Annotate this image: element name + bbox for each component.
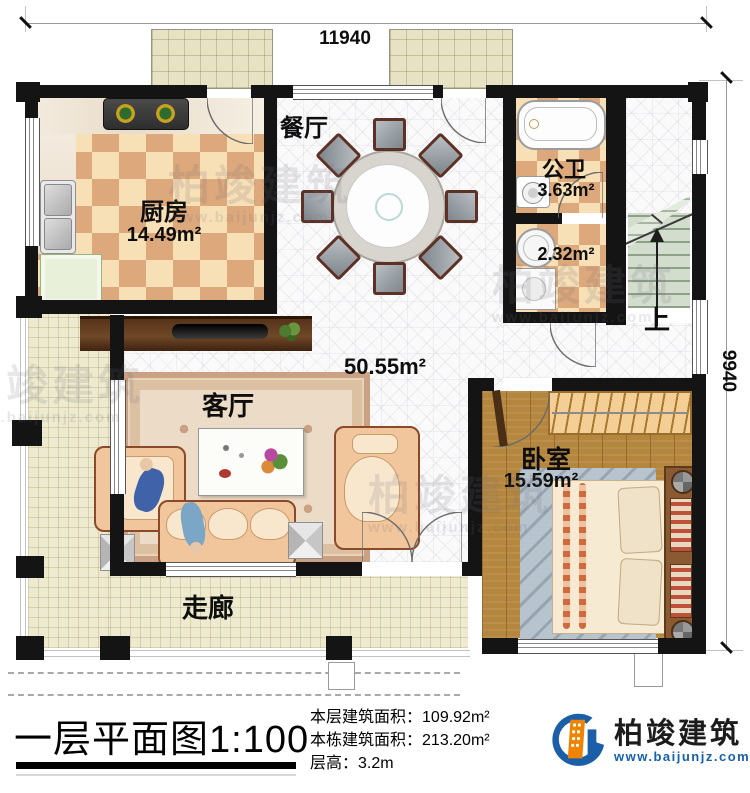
wall — [468, 378, 482, 576]
title-underline-thin — [16, 774, 296, 776]
stat-line: 本栋建筑面积：213.20m² — [310, 729, 490, 752]
veranda-edge — [20, 314, 21, 648]
room-area-kitchen: 14.49m² — [105, 224, 223, 247]
wall — [277, 85, 293, 98]
washer-drum — [522, 277, 546, 301]
table-center — [375, 193, 403, 221]
extension-line — [699, 80, 743, 81]
sofa-cushion — [208, 508, 248, 540]
double-door-arc — [362, 512, 412, 562]
double-door-arc — [412, 512, 462, 562]
wall — [692, 98, 706, 140]
entry-step — [328, 662, 355, 690]
building-stats: 本层建筑面积：109.92m² 本栋建筑面积：213.20m² 层高：3.2m — [310, 706, 490, 775]
top-dimension-label: 11940 — [300, 28, 390, 50]
wall — [516, 213, 562, 224]
column — [688, 82, 708, 102]
burner-icon — [156, 104, 175, 123]
window — [293, 85, 433, 100]
column — [16, 82, 40, 102]
room-area-bath: 3.63m² — [524, 180, 608, 201]
room-label-dining: 餐厅 — [280, 108, 328, 143]
stat-line: 层高：3.2m — [310, 752, 490, 775]
bed — [552, 480, 666, 634]
pillow — [617, 486, 662, 554]
sofa-cushion — [250, 508, 290, 540]
coffee-table — [198, 428, 304, 496]
fridge-icon — [40, 254, 102, 304]
room-label-living: 客厅 — [178, 386, 278, 423]
wall — [482, 378, 494, 391]
chair-icon — [373, 118, 406, 151]
door-arc — [441, 98, 486, 143]
dot-decor — [223, 445, 229, 451]
veranda-edge — [20, 650, 470, 651]
extension-line — [706, 6, 707, 32]
title-bar: 一层平面图1:100 本层建筑面积：109.92m² 本栋建筑面积：213.20… — [0, 700, 750, 793]
veranda-edge — [25, 314, 26, 648]
roof-overhang-dashed-line — [8, 694, 460, 696]
dish-decor — [219, 469, 231, 478]
arrow-head-icon — [650, 228, 664, 242]
side-table-icon — [288, 522, 323, 559]
wall — [486, 85, 706, 98]
wall — [606, 98, 626, 325]
wall — [25, 300, 277, 314]
stat-line: 本层建筑面积：109.92m² — [310, 706, 490, 729]
stove-icon — [103, 98, 189, 130]
stairs-up-label: 上 — [640, 300, 674, 337]
window — [25, 118, 40, 246]
room-area-bedroom: 15.59m² — [486, 470, 596, 493]
title-underline — [16, 762, 296, 769]
extension-line — [25, 6, 26, 32]
roof-overhang-dashed-line — [8, 672, 460, 674]
flower-decor — [259, 443, 289, 477]
three-seat-sofa — [158, 500, 296, 568]
blanket-stripe — [563, 483, 570, 629]
wall — [692, 174, 706, 300]
tub-drain — [529, 119, 539, 129]
wall — [462, 562, 482, 576]
wall — [658, 638, 706, 654]
window — [692, 300, 708, 374]
dot-decor — [239, 453, 244, 458]
wall — [110, 494, 124, 564]
room-area-hall: 50.55m² — [330, 354, 440, 380]
plant-icon — [278, 321, 302, 341]
pillow — [617, 558, 662, 626]
blanket-stripe — [579, 483, 586, 629]
wardrobe-rail — [552, 412, 688, 414]
logo-url: www.baijunjz.com — [614, 749, 750, 764]
wall — [110, 315, 124, 380]
room-area-utility: 2.32m² — [524, 244, 608, 265]
plan-title: 一层平面图1:100 — [14, 708, 309, 763]
burner-icon — [116, 104, 135, 123]
right-dimension-label: 9940 — [717, 341, 739, 401]
wall — [264, 98, 277, 300]
window — [110, 380, 126, 494]
window — [692, 140, 708, 174]
entry-step — [634, 652, 663, 687]
terrace-floor — [152, 30, 272, 88]
chaise-pillow — [352, 434, 398, 454]
washing-machine-icon — [512, 268, 556, 310]
column — [100, 636, 130, 660]
column — [16, 296, 42, 318]
terrace-floor — [390, 30, 512, 88]
stair-landing-floor — [626, 98, 692, 218]
chair-icon — [301, 190, 334, 223]
column — [12, 420, 42, 446]
door-arc — [550, 323, 596, 367]
wall — [692, 374, 706, 650]
logo-name: 柏竣建筑 — [614, 719, 750, 749]
wall — [482, 638, 518, 654]
floorplan-canvas: 11940 9940 — [0, 0, 750, 793]
logo-icon — [548, 710, 606, 772]
top-dimension-line — [25, 23, 707, 24]
wall — [503, 312, 626, 323]
sink-basin — [44, 218, 72, 250]
window — [166, 562, 296, 577]
wall — [251, 85, 277, 98]
room-label-kitchen: 厨房 — [118, 192, 210, 227]
headboard-panel — [670, 564, 692, 618]
wall — [503, 98, 516, 323]
company-logo: 柏竣建筑 www.baijunjz.com — [548, 710, 750, 772]
column — [326, 636, 352, 660]
column — [16, 636, 44, 660]
wardrobe — [548, 391, 692, 435]
wall — [25, 85, 207, 98]
door-arc — [207, 98, 253, 144]
bathtub-icon — [517, 100, 606, 150]
wall — [110, 562, 166, 576]
tv-icon — [172, 324, 268, 339]
logo-text-block: 柏竣建筑 www.baijunjz.com — [614, 719, 750, 764]
veranda-edge — [20, 656, 470, 657]
wall — [433, 85, 443, 98]
chair-icon — [373, 262, 406, 295]
wall — [296, 562, 362, 576]
sink-basin — [44, 184, 72, 216]
window — [518, 639, 658, 654]
column — [16, 556, 44, 578]
double-sink-icon — [40, 180, 76, 254]
room-label-corridor: 走廊 — [160, 588, 256, 625]
headboard-panel — [670, 498, 692, 552]
extension-line — [703, 650, 743, 651]
wall — [552, 378, 706, 391]
chair-icon — [445, 190, 478, 223]
